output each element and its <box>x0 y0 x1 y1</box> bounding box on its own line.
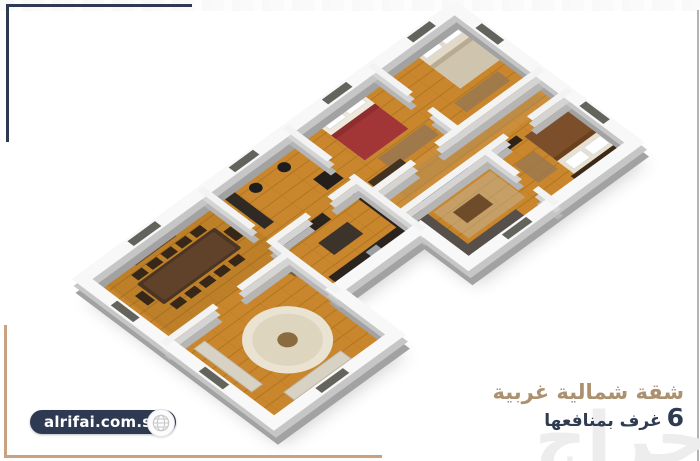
navy-corner-left-line <box>6 4 9 142</box>
apartment-title: شقة شمالية غربية <box>492 380 684 405</box>
website-label: alrifai.com.sa <box>44 413 162 431</box>
rooms-count: 6 <box>667 407 684 429</box>
caption-block: شقة شمالية غربية 6 غرف بمنافعها <box>492 380 684 432</box>
tan-corner-left-line <box>4 325 7 456</box>
right-edge-line <box>697 10 699 461</box>
rooms-line: 6 غرف بمنافعها <box>544 407 684 432</box>
rooms-label: غرف بمنافعها <box>544 410 661 432</box>
ad-canvas: حراج شقة شمالية غربية 6 غرف بمنافعها alr… <box>0 0 700 461</box>
globe-icon <box>147 409 175 437</box>
navy-corner-top-line <box>8 4 192 7</box>
tan-corner-bottom-line <box>4 455 382 458</box>
